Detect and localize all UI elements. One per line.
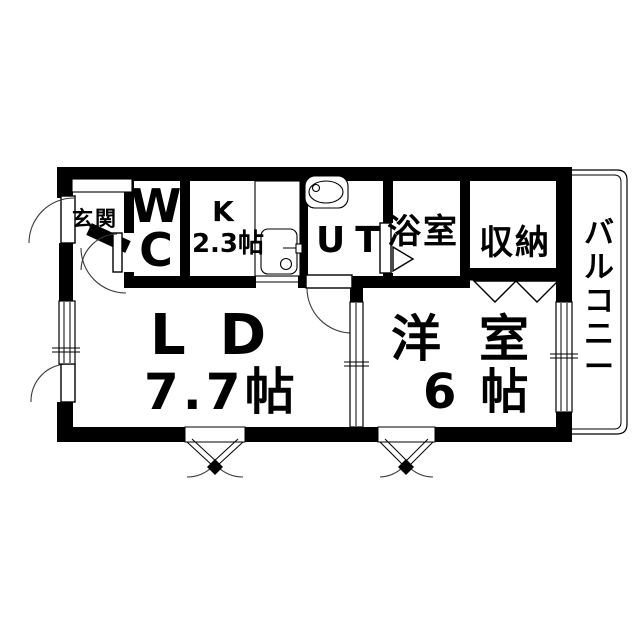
wall-left-mid [59,243,73,302]
closet-label: 収納 [479,223,551,263]
wall-left-upper [57,167,73,198]
room-slider-door [344,302,369,427]
wash-basin [305,176,348,208]
wall-bottom-b [245,427,378,442]
wall-wc-kitchen-bottom [124,276,256,288]
wall-right-upper [556,167,572,302]
balcony-char-1: バ [584,216,614,251]
balcony-char-5: ー [584,350,614,385]
living-dining-label: LD [150,303,300,368]
wall-wc-kitchen [180,181,190,288]
wall-right-lower [556,412,572,442]
wall-ut-bath-bottom [352,276,467,288]
balcony-char-4: ニ [584,317,614,352]
ld-casement-window [185,427,245,477]
balcony-char-3: コ [584,284,614,319]
utility-door [306,275,352,333]
western-casement-window [378,427,435,477]
wall-bottom-a [57,427,185,442]
room-labels: 玄関 W C K 2.3帖 UT 浴室 収納 バ ル コ ニ ー LD 7.7帖… [72,179,614,421]
kitchen-size: 2.3帖 [192,229,264,259]
western-room-label: 洋室 [391,310,567,368]
wall-closet-bottom [467,268,563,280]
kitchen-label: K [212,195,235,228]
closet-folding-doors [470,280,560,302]
bathroom-label: 浴室 [387,212,459,252]
floor-plan: 玄関 W C K 2.3帖 UT 浴室 収納 バ ル コ ニ ー LD 7.7帖… [0,0,640,640]
ld-side-door [31,364,75,402]
shoe-cabinet [72,179,132,192]
ld-window [52,301,80,364]
entrance-door [29,196,75,243]
utility-label: UT [316,220,390,261]
floor-plan-canvas: 玄関 W C K 2.3帖 UT 浴室 収納 バ ル コ ニ ー LD 7.7帖… [0,0,640,640]
genkan-label: 玄関 [72,207,118,231]
living-dining-size: 7.7帖 [144,363,299,421]
wc-label-line2: C [139,223,173,277]
wall-bottom-c [435,427,572,442]
western-room-size: 6帖 [423,364,552,420]
balcony-label: バ ル コ ニ ー [584,216,614,385]
balcony-char-2: ル [584,250,614,285]
